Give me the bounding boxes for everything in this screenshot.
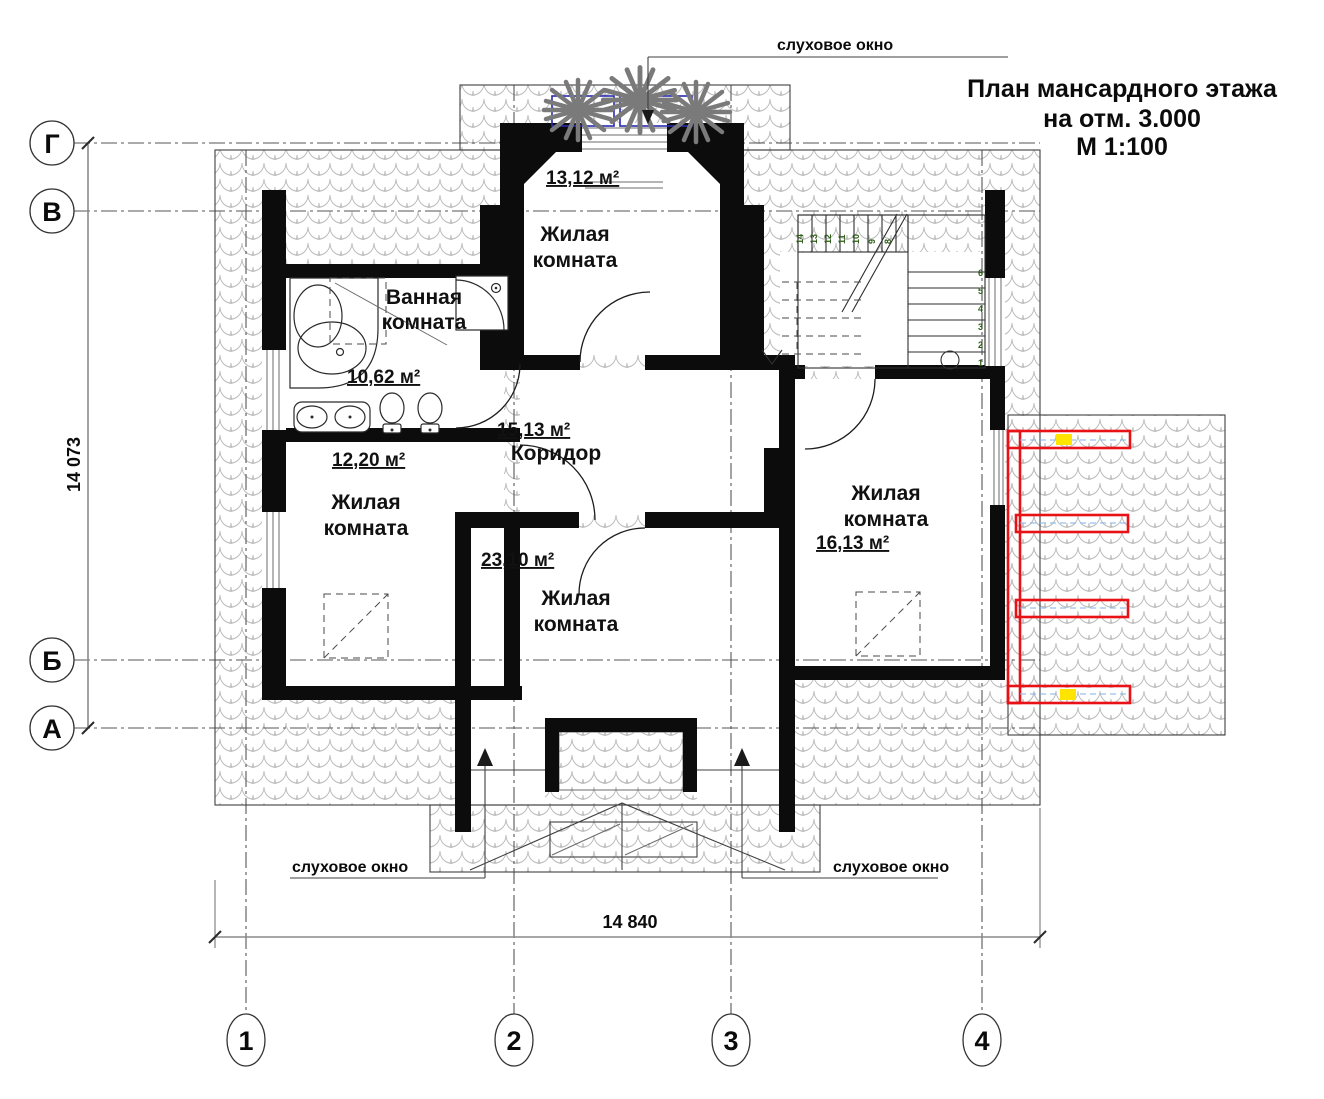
room-left: 12,20 м² Жилая комната [324, 450, 409, 540]
svg-text:Жилая: Жилая [850, 482, 920, 505]
svg-text:14 840: 14 840 [602, 912, 657, 932]
svg-text:Жилая: Жилая [540, 587, 610, 610]
svg-text:12,20 м²: 12,20 м² [332, 450, 405, 471]
svg-text:Г: Г [44, 129, 59, 159]
svg-text:А: А [42, 714, 62, 744]
railing-highlight-bottom [1060, 689, 1076, 700]
double-sink [294, 402, 370, 432]
toilet-2 [418, 393, 442, 433]
svg-text:2: 2 [978, 340, 983, 350]
page-title-elevation: на отм. 3.000 [1043, 105, 1201, 133]
svg-text:комната: комната [844, 508, 929, 531]
svg-text:16,13 м²: 16,13 м² [816, 533, 889, 554]
svg-text:Жилая: Жилая [330, 491, 400, 514]
svg-text:слуховое окно: слуховое окно [777, 37, 893, 54]
svg-text:13,12 м²: 13,12 м² [546, 168, 619, 189]
svg-text:5: 5 [978, 286, 983, 296]
svg-text:В: В [42, 197, 62, 227]
svg-text:3: 3 [978, 322, 983, 332]
svg-text:10: 10 [851, 234, 861, 244]
svg-text:3: 3 [723, 1026, 738, 1056]
svg-text:слуховое окно: слуховое окно [292, 859, 408, 876]
page-title-scale: М 1:100 [1076, 133, 1168, 161]
svg-text:14 073: 14 073 [64, 437, 84, 492]
page-title: План мансардного этажа [967, 75, 1278, 103]
svg-text:Коридор: Коридор [511, 442, 601, 465]
svg-text:1: 1 [978, 358, 983, 368]
svg-text:8: 8 [883, 239, 893, 244]
railing-highlight-top [1056, 434, 1072, 445]
window-bathroom-left [262, 350, 286, 430]
svg-text:12: 12 [823, 234, 833, 244]
svg-text:Жилая: Жилая [539, 223, 609, 246]
svg-text:9: 9 [867, 239, 877, 244]
svg-text:2: 2 [506, 1026, 521, 1056]
window-stair-hall [985, 278, 1005, 366]
axis-bubbles-bottom: 1 2 3 4 [227, 1014, 1001, 1066]
svg-text:слуховое окно: слуховое окно [833, 859, 949, 876]
svg-text:комната: комната [324, 517, 409, 540]
svg-text:13: 13 [809, 234, 819, 244]
floor-plan-drawing: 14 13 12 11 10 9 8 6 5 4 3 2 1 [0, 0, 1324, 1099]
axis-bubbles-left: Г В Б А [30, 121, 74, 750]
svg-text:Ванная: Ванная [386, 286, 462, 309]
svg-text:1: 1 [238, 1026, 253, 1056]
floor-plan-page: 14 13 12 11 10 9 8 6 5 4 3 2 1 [0, 0, 1324, 1099]
title-block: План мансардного этажа на отм. 3.000 М 1… [967, 75, 1278, 161]
svg-text:4: 4 [974, 1026, 989, 1056]
plant-icon [662, 82, 730, 142]
window-left-room [262, 512, 286, 588]
window-right-room-balcony [990, 430, 1005, 505]
svg-text:14: 14 [795, 234, 805, 244]
svg-text:4: 4 [978, 304, 983, 314]
svg-text:6: 6 [978, 268, 983, 278]
svg-text:комната: комната [534, 613, 619, 636]
plant-icon [544, 80, 612, 140]
dimension-left: 14 073 [64, 137, 94, 734]
svg-text:10,62 м²: 10,62 м² [347, 367, 420, 388]
svg-text:Б: Б [42, 646, 61, 676]
svg-text:15,13 м²: 15,13 м² [497, 420, 570, 441]
svg-text:11: 11 [837, 234, 847, 244]
svg-text:комната: комната [533, 249, 618, 272]
svg-text:23,10 м²: 23,10 м² [481, 550, 554, 571]
toilet-1 [380, 393, 404, 433]
svg-text:комната: комната [382, 311, 467, 334]
